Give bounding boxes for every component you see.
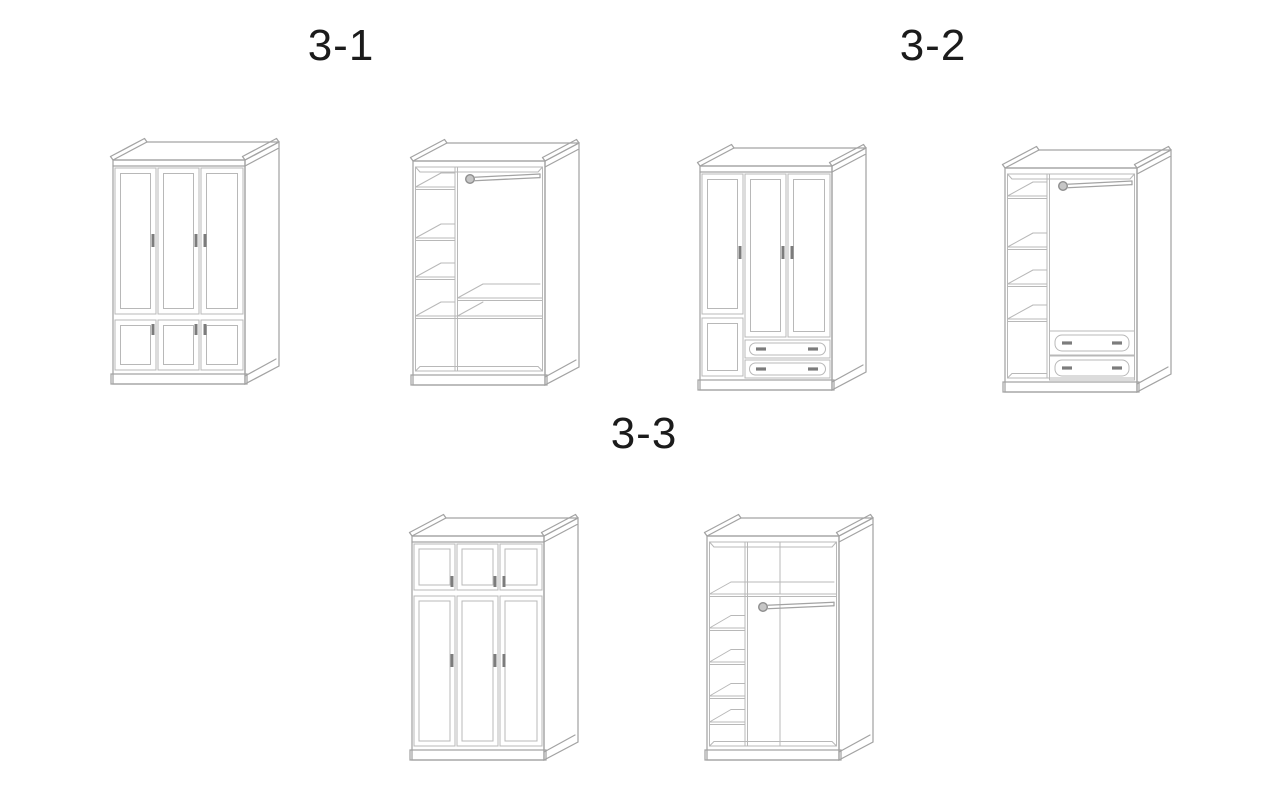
wardrobe-diagram-sheet: 3-1 3-2 3-3 [0, 0, 1280, 800]
carcass [698, 145, 867, 391]
variant-label-3-2: 3-2 [900, 24, 967, 68]
wardrobe-3-3-closed-drawing [398, 494, 588, 774]
wardrobe-3-3-open-drawing [693, 494, 883, 774]
figure-3-1-closed [99, 118, 289, 398]
interior-cavity [1008, 174, 1135, 378]
variant-label-3-1: 3-1 [308, 24, 375, 68]
hanging-rod-icon [1059, 181, 1132, 190]
figure-3-1-open [399, 119, 589, 399]
figure-3-3-open [693, 494, 883, 774]
doors [414, 544, 542, 746]
wardrobe-3-2-open-drawing [991, 126, 1181, 406]
carcass [410, 515, 579, 761]
interior-cavity [416, 167, 543, 371]
hanging-rod-icon [759, 602, 834, 611]
doors [115, 168, 243, 370]
wardrobe-3-1-closed-drawing [99, 118, 289, 398]
variant-label-3-3: 3-3 [611, 412, 678, 456]
figure-3-2-open [991, 126, 1181, 406]
hanging-rod-icon [466, 174, 540, 183]
carcass [111, 139, 280, 385]
drawers [1050, 331, 1135, 380]
shelves [416, 173, 543, 319]
figure-3-3-closed [398, 494, 588, 774]
shelves [1008, 182, 1048, 322]
doors [702, 174, 830, 376]
carcass [705, 515, 874, 761]
drawers [745, 340, 830, 378]
interior-cavity [710, 542, 837, 746]
wardrobe-3-1-open-drawing [399, 119, 589, 399]
figure-3-2-closed [686, 124, 876, 404]
wardrobe-3-2-closed-drawing [686, 124, 876, 404]
